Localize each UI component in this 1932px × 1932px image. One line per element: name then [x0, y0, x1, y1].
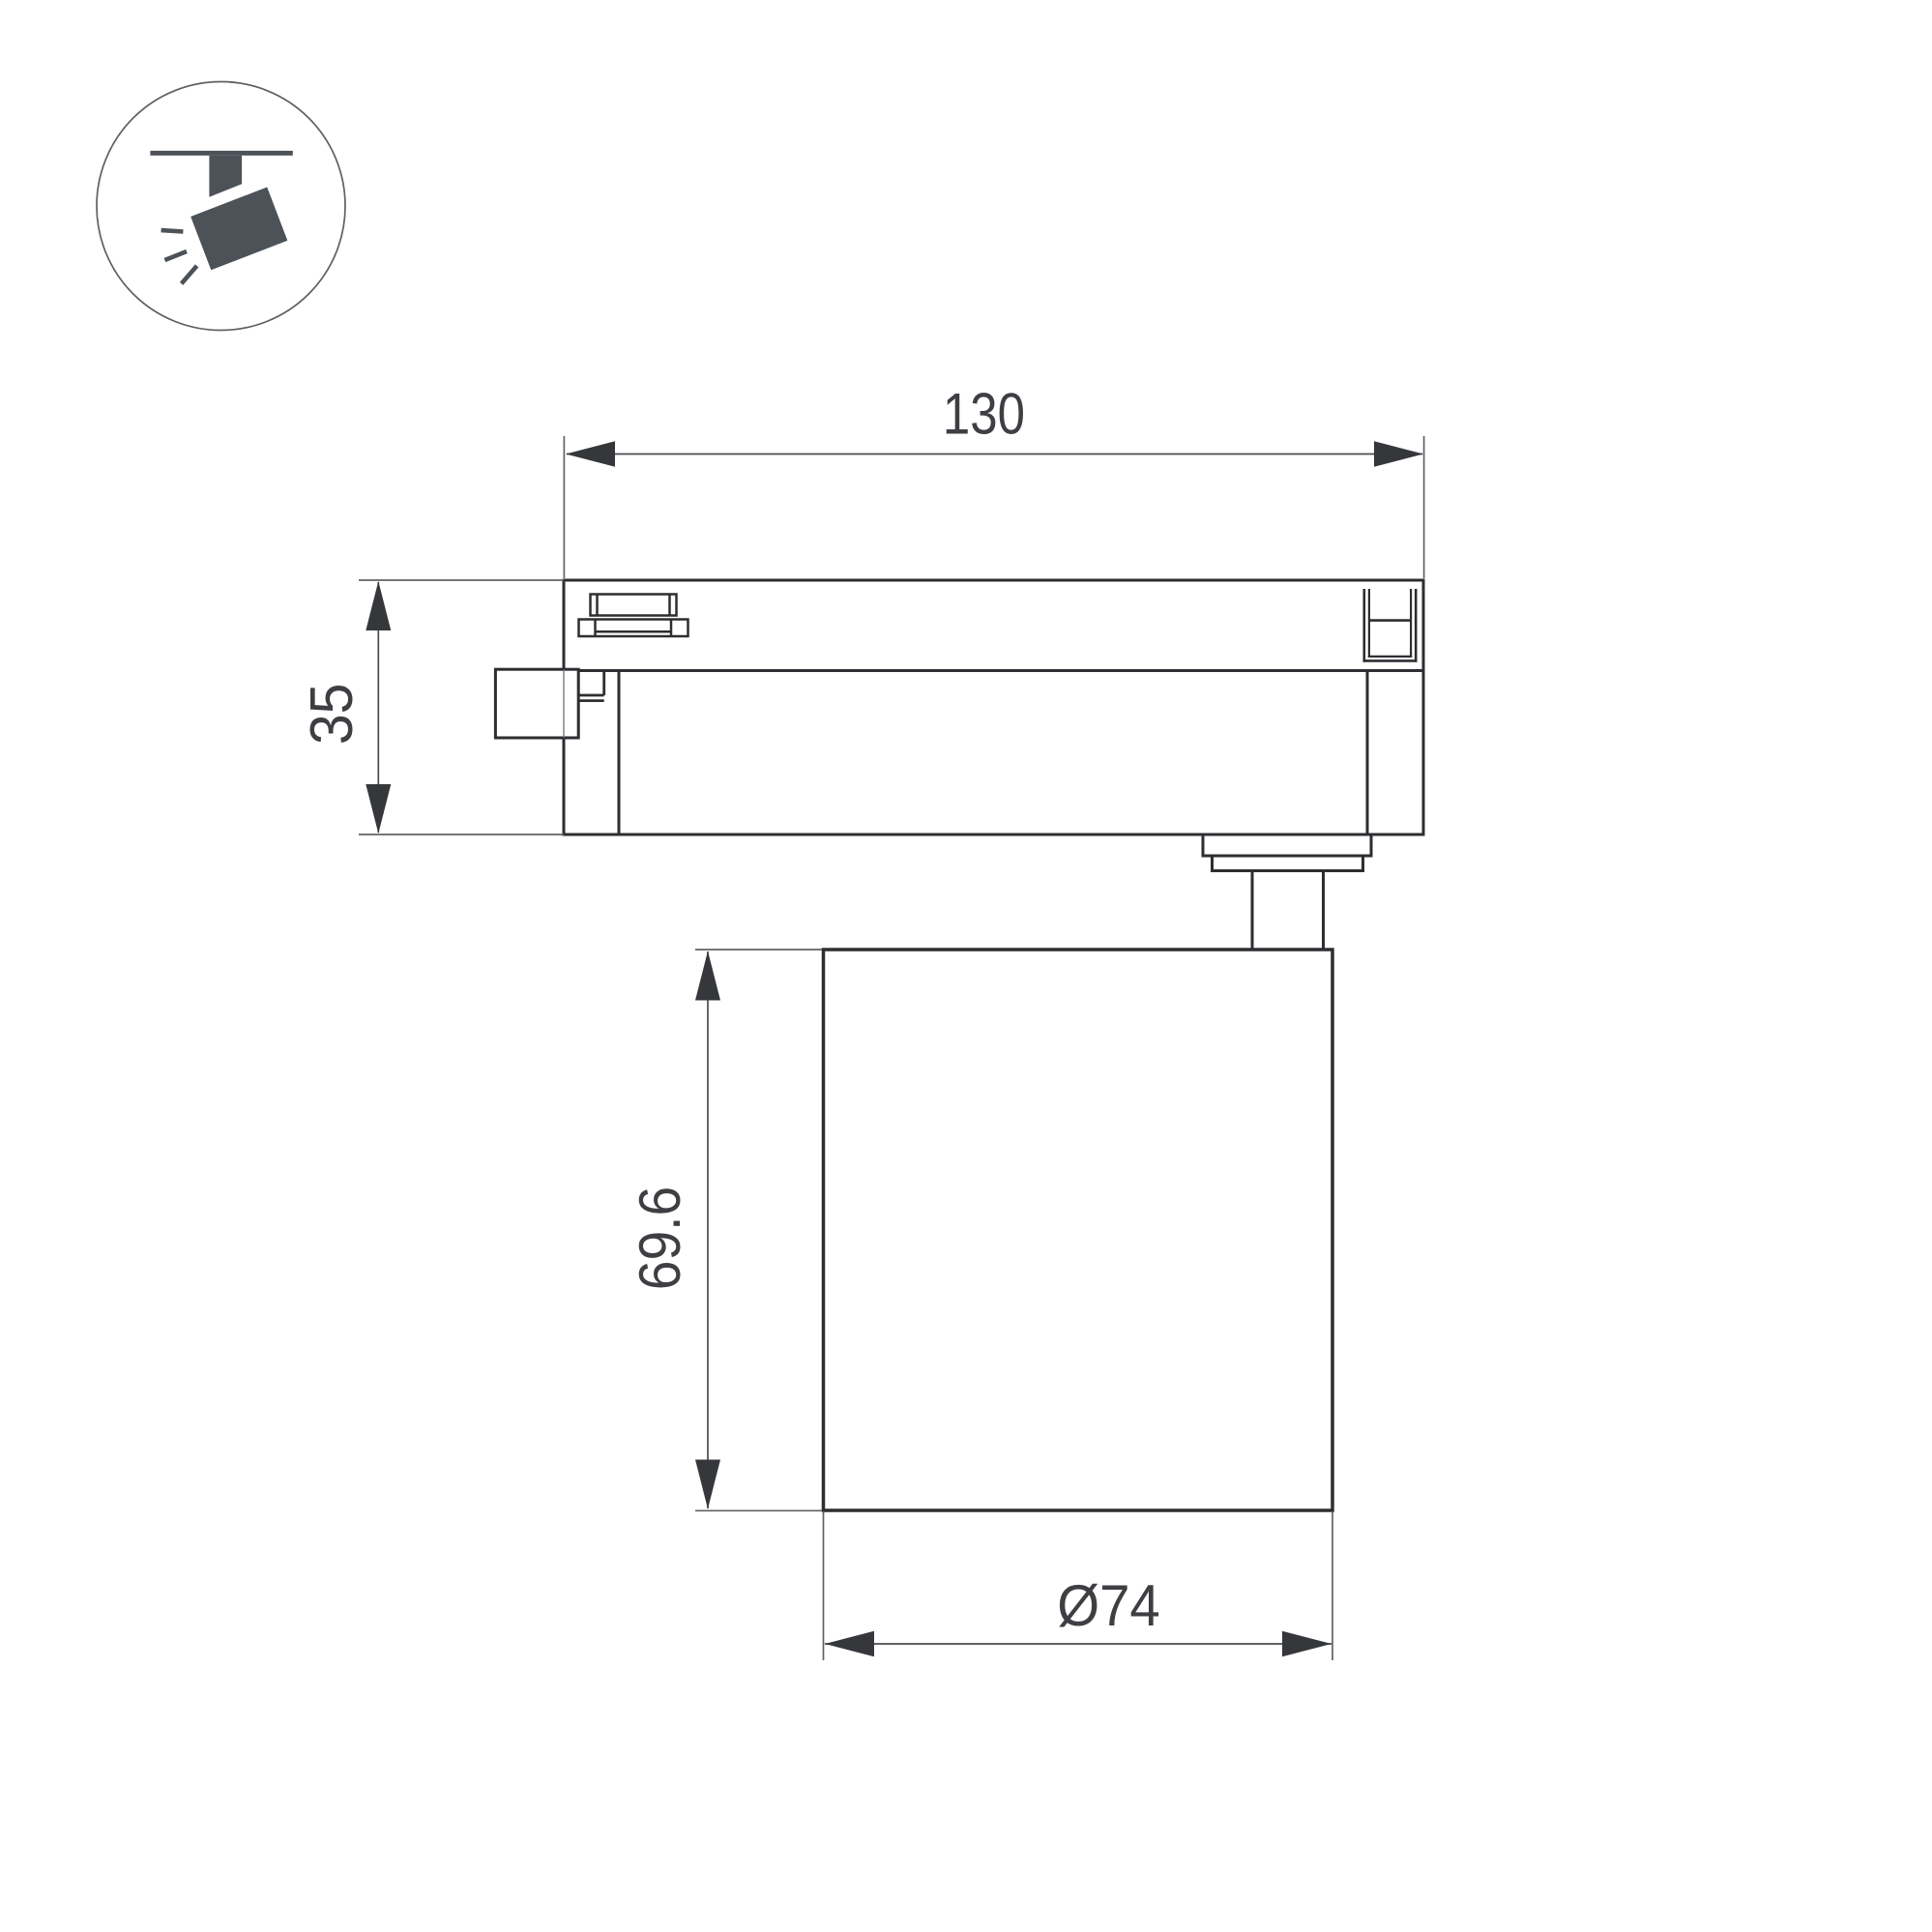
svg-text:130: 130 [943, 382, 1025, 447]
svg-text:69.6: 69.6 [629, 1186, 693, 1290]
svg-text:35: 35 [298, 684, 366, 745]
svg-text:Ø74: Ø74 [1057, 1573, 1160, 1638]
